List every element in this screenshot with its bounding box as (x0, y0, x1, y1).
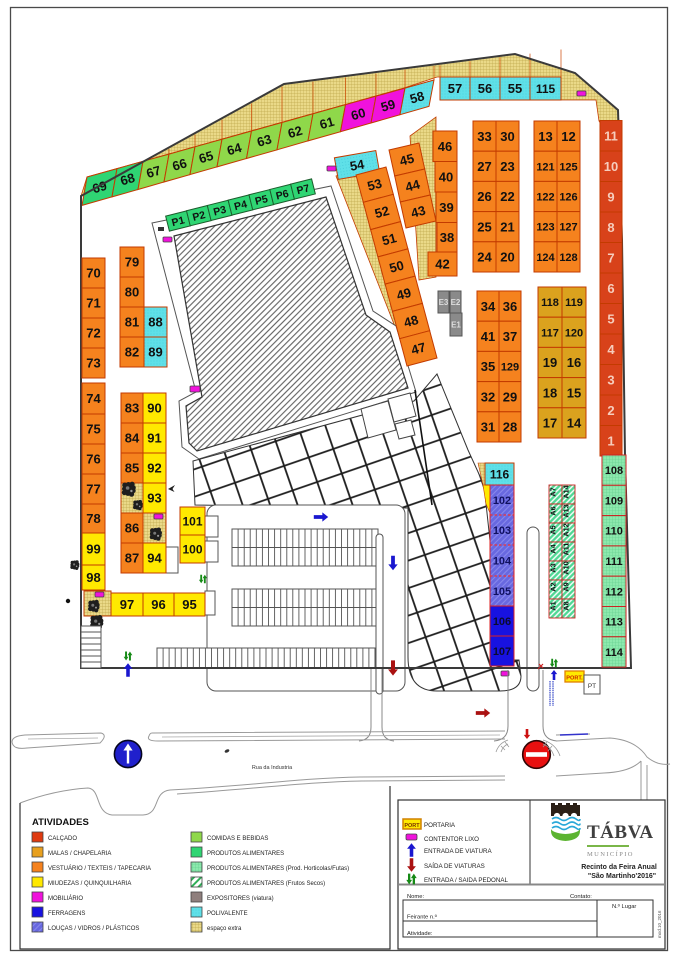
svg-text:93: 93 (147, 491, 161, 506)
svg-text:99: 99 (86, 542, 100, 557)
svg-text:15: 15 (567, 385, 581, 400)
svg-text:36: 36 (503, 299, 517, 314)
svg-text:95: 95 (182, 597, 196, 612)
svg-text:33: 33 (477, 129, 491, 144)
svg-text:110: 110 (605, 526, 623, 538)
svg-text:39: 39 (439, 200, 453, 215)
svg-text:107: 107 (493, 646, 511, 658)
svg-text:30: 30 (500, 129, 514, 144)
svg-text:A10: A10 (562, 561, 571, 574)
svg-text:A2: A2 (549, 582, 558, 591)
svg-text:46: 46 (438, 139, 452, 154)
svg-text:A5: A5 (549, 525, 558, 534)
svg-text:41: 41 (481, 329, 495, 344)
svg-text:29: 29 (503, 389, 517, 404)
svg-text:Nome:: Nome: (407, 894, 424, 900)
svg-text:A14: A14 (562, 485, 571, 498)
svg-text:26: 26 (477, 189, 491, 204)
svg-text:CALÇADO: CALÇADO (48, 836, 77, 842)
svg-text:32: 32 (481, 389, 495, 404)
svg-text:22: 22 (500, 189, 514, 204)
svg-text:74: 74 (86, 391, 101, 406)
svg-text:A11: A11 (562, 543, 571, 556)
svg-text:25: 25 (477, 219, 491, 234)
svg-text:27: 27 (477, 159, 491, 174)
svg-text:5: 5 (607, 311, 614, 326)
svg-text:24: 24 (477, 250, 492, 265)
svg-text:111: 111 (605, 556, 622, 568)
svg-text:7: 7 (607, 250, 614, 265)
svg-text:A6: A6 (549, 506, 558, 515)
svg-text:mod.10_2016: mod.10_2016 (657, 910, 662, 938)
svg-text:14: 14 (567, 416, 582, 431)
svg-text:12: 12 (561, 129, 575, 144)
svg-text:73: 73 (86, 356, 100, 371)
svg-text:E2: E2 (451, 298, 461, 307)
svg-text:122: 122 (536, 191, 554, 203)
svg-text:ENTRADA / SAIDA PEDONAL: ENTRADA / SAIDA PEDONAL (424, 877, 508, 884)
svg-text:118: 118 (541, 297, 559, 309)
svg-text:17: 17 (543, 416, 557, 431)
svg-text:79: 79 (125, 255, 139, 270)
svg-text:13: 13 (538, 129, 552, 144)
svg-text:76: 76 (86, 452, 100, 467)
svg-text:109: 109 (605, 495, 623, 507)
svg-text:SAÍDA DE VIATURAS: SAÍDA DE VIATURAS (424, 863, 485, 870)
svg-text:37: 37 (503, 329, 517, 344)
svg-text:86: 86 (125, 521, 139, 536)
svg-text:11: 11 (604, 128, 618, 143)
svg-text:55: 55 (508, 81, 522, 96)
svg-text:123: 123 (536, 222, 554, 234)
svg-text:Rua da Industria: Rua da Industria (252, 765, 293, 771)
svg-text:92: 92 (147, 461, 161, 476)
svg-text:104: 104 (493, 556, 512, 568)
svg-text:97: 97 (120, 597, 134, 612)
svg-text:PT: PT (588, 683, 596, 690)
svg-text:81: 81 (125, 315, 139, 330)
svg-text:42: 42 (435, 257, 449, 272)
svg-text:126: 126 (559, 191, 577, 203)
svg-text:119: 119 (565, 297, 583, 309)
svg-text:125: 125 (559, 161, 577, 173)
svg-text:VESTUÁRIO / TEXTEIS / TAPECARI: VESTUÁRIO / TEXTEIS / TAPECARIA (48, 865, 151, 872)
svg-text:120: 120 (565, 327, 583, 339)
svg-text:103: 103 (493, 525, 511, 537)
svg-text:85: 85 (125, 461, 139, 476)
svg-text:Atividade:: Atividade: (407, 931, 433, 937)
svg-text:E1: E1 (451, 320, 461, 329)
svg-text:87: 87 (125, 551, 139, 566)
svg-text:38: 38 (440, 230, 454, 245)
svg-text:31: 31 (481, 420, 495, 435)
svg-text:9: 9 (607, 189, 614, 204)
svg-text:89: 89 (148, 345, 162, 360)
svg-text:116: 116 (490, 467, 510, 481)
svg-text:127: 127 (559, 222, 577, 234)
svg-text:COMIDAS E BEBIDAS: COMIDAS E BEBIDAS (207, 836, 268, 842)
svg-text:A8: A8 (562, 601, 571, 610)
svg-text:84: 84 (125, 431, 140, 446)
svg-text:A13: A13 (562, 504, 571, 517)
svg-text:FERRAGENS: FERRAGENS (48, 911, 85, 917)
svg-text:114: 114 (605, 647, 624, 659)
svg-text:4: 4 (607, 342, 615, 357)
svg-text:PRODUTOS ALIMENTARES (Prod. Ho: PRODUTOS ALIMENTARES (Prod. Horticolas/F… (207, 866, 349, 872)
svg-text:A12: A12 (562, 523, 571, 536)
svg-text:N.º Lugar: N.º Lugar (612, 903, 636, 910)
svg-text:2: 2 (607, 403, 614, 418)
svg-text:ATIVIDADES: ATIVIDADES (32, 817, 89, 828)
svg-text:A9: A9 (562, 582, 571, 591)
svg-text:71: 71 (86, 296, 100, 311)
svg-text:98: 98 (86, 570, 100, 585)
svg-text:LOUÇAS / VIDROS / PLÁSTICOS: LOUÇAS / VIDROS / PLÁSTICOS (48, 925, 139, 932)
svg-text:Contato:: Contato: (570, 894, 592, 900)
svg-text:EXPOSITORES (viatura): EXPOSITORES (viatura) (207, 896, 274, 902)
svg-text:espaço extra: espaço extra (207, 926, 242, 932)
svg-text:72: 72 (86, 326, 100, 341)
svg-text:A1: A1 (549, 601, 558, 610)
svg-text:PORT.: PORT. (566, 676, 583, 682)
svg-text:6: 6 (607, 281, 614, 296)
svg-text:A7: A7 (549, 487, 558, 496)
svg-text:77: 77 (86, 482, 100, 497)
svg-text:128: 128 (559, 252, 577, 264)
svg-text:E3: E3 (439, 298, 449, 307)
svg-text:83: 83 (125, 401, 139, 416)
svg-text:POLIVALENTE: POLIVALENTE (207, 911, 248, 917)
svg-text:129: 129 (501, 361, 519, 373)
svg-text:Recinto da Feira Anual: Recinto da Feira Anual (581, 864, 657, 871)
svg-text:16: 16 (567, 355, 581, 370)
svg-text:"São Martinho'2016": "São Martinho'2016" (588, 873, 656, 880)
svg-text:20: 20 (500, 250, 514, 265)
svg-text:Feirante n.º: Feirante n.º (407, 914, 438, 921)
svg-text:21: 21 (500, 219, 514, 234)
svg-text:82: 82 (125, 345, 139, 360)
svg-text:78: 78 (86, 511, 100, 526)
svg-text:TÁBVA: TÁBVA (587, 821, 654, 843)
svg-text:PORTARIA: PORTARIA (424, 822, 456, 829)
svg-text:1: 1 (607, 433, 614, 448)
svg-text:105: 105 (493, 586, 511, 598)
svg-text:40: 40 (439, 169, 453, 184)
svg-text:96: 96 (151, 597, 165, 612)
svg-text:124: 124 (536, 252, 555, 264)
svg-text:PRODUTOS ALIMENTARES: PRODUTOS ALIMENTARES (207, 851, 284, 857)
svg-text:35: 35 (481, 359, 495, 374)
svg-text:56: 56 (478, 81, 492, 96)
svg-text:121: 121 (536, 161, 554, 173)
svg-text:A4: A4 (549, 544, 558, 553)
svg-text:MUNICÍPIO: MUNICÍPIO (587, 850, 634, 858)
svg-text:91: 91 (147, 431, 161, 446)
svg-text:MIUDEZAS / QUINQUILHARIA: MIUDEZAS / QUINQUILHARIA (48, 881, 131, 887)
svg-text:ENTRADA DE VIATURA: ENTRADA DE VIATURA (424, 848, 492, 855)
svg-text:18: 18 (543, 385, 557, 400)
svg-text:PORT: PORT (404, 823, 420, 829)
svg-text:19: 19 (543, 355, 557, 370)
svg-text:PRODUTOS ALIMENTARES (Frutos S: PRODUTOS ALIMENTARES (Frutos Secos) (207, 881, 325, 887)
svg-text:MALAS / CHAPELARIA: MALAS / CHAPELARIA (48, 851, 111, 857)
svg-text:90: 90 (147, 401, 161, 416)
svg-text:57: 57 (448, 81, 462, 96)
svg-text:28: 28 (503, 420, 517, 435)
svg-text:113: 113 (605, 617, 623, 629)
svg-text:115: 115 (536, 82, 556, 96)
svg-text:10: 10 (604, 159, 618, 174)
svg-text:108: 108 (605, 465, 623, 477)
svg-text:94: 94 (147, 551, 162, 566)
svg-text:88: 88 (148, 315, 162, 330)
svg-text:117: 117 (541, 327, 559, 339)
svg-text:8: 8 (607, 220, 614, 235)
svg-text:23: 23 (500, 159, 514, 174)
svg-text:MOBILIÁRIO: MOBILIÁRIO (48, 895, 83, 902)
svg-text:A3: A3 (549, 563, 558, 572)
svg-text:112: 112 (605, 586, 623, 598)
svg-text:100: 100 (182, 542, 202, 556)
svg-text:80: 80 (125, 285, 139, 300)
svg-text:106: 106 (493, 616, 511, 628)
svg-text:CONTENTOR LIXO: CONTENTOR LIXO (424, 836, 479, 843)
svg-text:101: 101 (182, 514, 202, 528)
svg-text:70: 70 (86, 266, 100, 281)
svg-text:102: 102 (493, 495, 511, 507)
svg-text:75: 75 (86, 422, 100, 437)
svg-text:34: 34 (481, 299, 496, 314)
svg-text:3: 3 (607, 372, 614, 387)
